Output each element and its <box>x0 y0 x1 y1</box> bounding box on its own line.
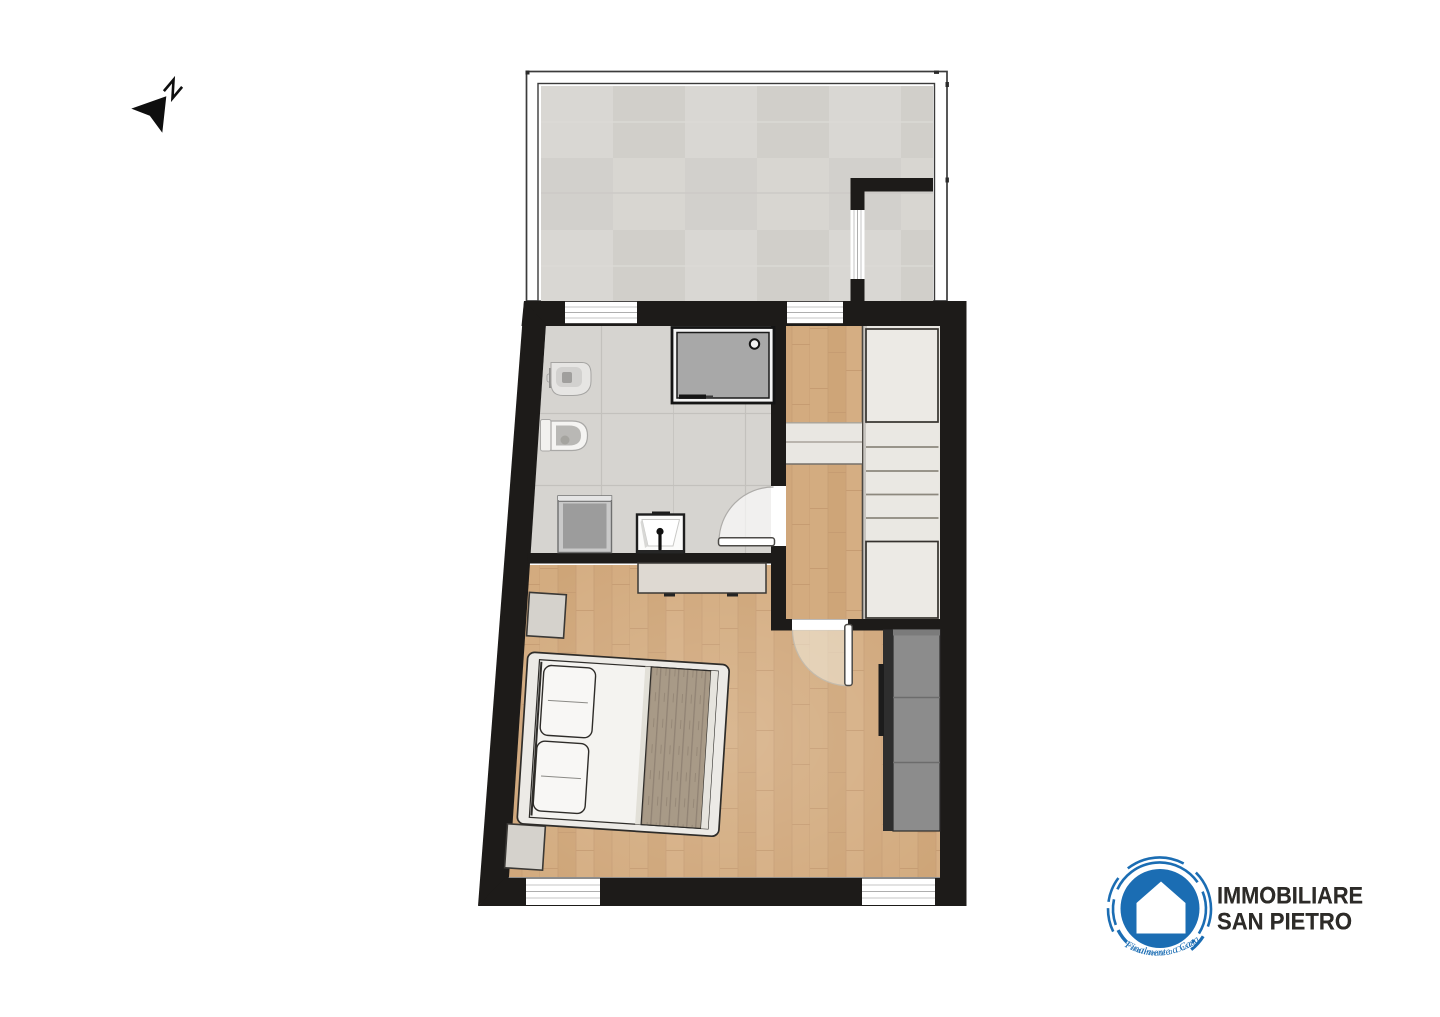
svg-text:SAN PIETRO: SAN PIETRO <box>1217 909 1352 936</box>
svg-text:IMMOBILIARE: IMMOBILIARE <box>1217 883 1363 910</box>
